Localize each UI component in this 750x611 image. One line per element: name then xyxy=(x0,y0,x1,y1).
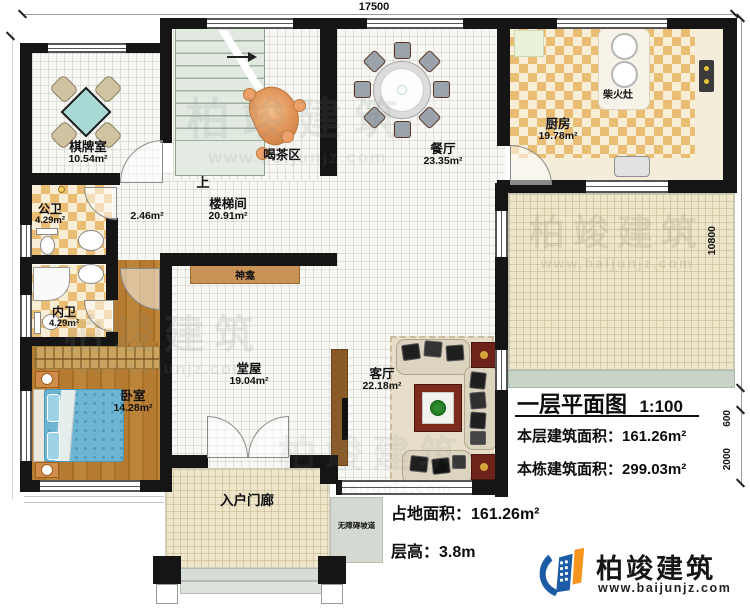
sofa-cushion xyxy=(401,343,421,361)
room-area: 4.29m² xyxy=(38,319,90,330)
gas-burner xyxy=(704,66,709,71)
floor-plan: 无障碍坡道 xyxy=(0,0,750,611)
ceiling-lamp xyxy=(58,186,65,193)
window xyxy=(495,211,508,257)
porch-pillar-base xyxy=(321,584,343,604)
window xyxy=(495,350,508,390)
wood-stove-burner xyxy=(611,61,638,88)
eaves-line-left xyxy=(12,32,13,500)
room-area: 10.54m² xyxy=(48,154,128,166)
wall xyxy=(160,43,172,143)
wall xyxy=(160,253,337,266)
room-name: 内卫 xyxy=(38,306,90,319)
floor-area-value: 161.26m² xyxy=(622,428,686,445)
bed-pillow xyxy=(47,394,60,422)
tv-screen xyxy=(342,398,348,440)
window xyxy=(40,480,140,492)
window xyxy=(20,391,32,461)
porch-step-2 xyxy=(180,581,322,594)
room-area: 19.04m² xyxy=(218,376,280,388)
stair-direction-arrow xyxy=(248,52,257,62)
porch-pillar xyxy=(153,556,181,584)
nightstand-lamp xyxy=(41,464,53,476)
floor-area-line: 本层建筑面积：161.26m² xyxy=(517,425,686,446)
building-logo-icon xyxy=(534,546,592,598)
public-bath-label: 公卫 4.29m² xyxy=(24,203,76,227)
kitchen-label: 厨房 19.78m² xyxy=(524,117,592,143)
gas-burner xyxy=(704,79,709,84)
toilet-bowl xyxy=(40,236,55,255)
dining-chair xyxy=(354,81,371,98)
wall xyxy=(160,253,172,492)
room-name: 堂屋 xyxy=(218,362,280,376)
dining-chair xyxy=(394,121,411,138)
porch-pillar-base xyxy=(156,584,178,604)
room-name: 厨房 xyxy=(524,117,592,131)
wood-stove-label: 柴火灶 xyxy=(591,90,645,101)
wood-stove-burner xyxy=(611,33,638,60)
porch-pillar xyxy=(318,556,346,584)
porch-step-1 xyxy=(180,568,322,581)
tea-stool xyxy=(281,130,294,143)
wall xyxy=(20,255,110,264)
ramp-label: 无障碍坡道 xyxy=(331,522,382,530)
room-area: 23.35m² xyxy=(411,156,475,168)
window xyxy=(20,225,32,257)
bathroom-sink xyxy=(78,230,104,251)
bed-pillow xyxy=(47,432,60,460)
wall xyxy=(723,18,737,193)
wall xyxy=(20,173,120,185)
gas-cooktop xyxy=(699,60,714,92)
room-name: 餐厅 xyxy=(411,142,475,156)
room-area: 4.29m² xyxy=(24,216,76,227)
sofa-cushion xyxy=(423,340,442,358)
brand-url: www.baijunjz.com xyxy=(598,581,731,595)
wall xyxy=(20,337,118,346)
window xyxy=(367,18,463,29)
entry-porch xyxy=(165,468,330,568)
room-area: 14.28m² xyxy=(102,403,164,415)
window xyxy=(207,18,293,29)
chess-room-label: 棋牌室 10.54m² xyxy=(48,140,128,166)
window xyxy=(586,180,668,193)
room-name: 客厅 xyxy=(351,367,413,381)
stair-landing xyxy=(176,141,264,175)
nightstand-lamp xyxy=(41,373,53,385)
storey-height-value: 3.8m xyxy=(439,544,475,561)
site-area-value: 161.26m² xyxy=(471,506,540,523)
title-block: 一层平面图 1:100 本层建筑面积：161.26m² 本栋建筑面积：299.0… xyxy=(388,385,743,565)
tea-stool xyxy=(243,88,256,101)
wall xyxy=(172,455,208,468)
window xyxy=(20,295,32,337)
end-table-ornament xyxy=(480,351,488,359)
building-area-label: 本栋建筑面积： xyxy=(517,461,622,478)
floor-area-label: 本层建筑面积： xyxy=(517,428,622,445)
shrine-label: 神龛 xyxy=(235,271,255,282)
building-area-value: 299.03m² xyxy=(622,461,686,478)
stair-direction-line xyxy=(227,56,249,58)
building-area-line: 本栋建筑面积：299.03m² xyxy=(517,458,686,479)
room-name: 楼梯间 xyxy=(196,197,260,211)
dining-chair xyxy=(433,81,450,98)
dim-line-top xyxy=(22,14,735,15)
dim-top-label: 17500 xyxy=(339,1,409,13)
window xyxy=(557,18,667,29)
toilet-tank xyxy=(36,228,58,235)
patio xyxy=(508,193,735,370)
wall xyxy=(320,18,337,176)
room-area: 19.78m² xyxy=(524,131,592,143)
wardrobe xyxy=(34,346,160,369)
dish-rack xyxy=(514,30,544,57)
storey-height-label: 层高： xyxy=(391,544,439,561)
site-area-line: 占地面积：161.26m² xyxy=(391,500,540,524)
bathroom-sink xyxy=(78,264,104,284)
shrine-shelf: 神龛 xyxy=(190,265,300,284)
kitchen-sink xyxy=(614,156,650,177)
storey-height-line: 层高：3.8m xyxy=(391,538,475,562)
title-underline xyxy=(515,415,699,417)
corridor-area-label: 2.46m² xyxy=(124,211,170,223)
tea-stool xyxy=(293,99,306,112)
dim-tick xyxy=(6,31,15,40)
room-name: 棋牌室 xyxy=(48,140,128,154)
room-area: 20.91m² xyxy=(196,211,260,223)
inner-bath-label: 内卫 4.29m² xyxy=(38,306,90,330)
dim-right-main: 10800 xyxy=(706,226,718,255)
stairs-up-label: 上 xyxy=(193,176,213,191)
porch-label: 入户门廊 xyxy=(203,493,291,508)
bedroom-label: 卧室 14.28m² xyxy=(102,389,164,415)
dining-table-center xyxy=(397,85,407,95)
stair-break-line xyxy=(215,30,267,92)
dining-label: 餐厅 23.35m² xyxy=(411,142,475,168)
tea-area-label: 喝茶区 xyxy=(252,148,312,162)
wall xyxy=(106,265,118,300)
wall xyxy=(497,18,510,146)
room-name: 公卫 xyxy=(24,203,76,216)
dining-chair xyxy=(394,42,411,59)
ramp: 无障碍坡道 xyxy=(330,497,383,563)
stairwell-label: 楼梯间 20.91m² xyxy=(196,197,260,223)
plan-scale: 1:100 xyxy=(639,397,682,416)
room-name: 卧室 xyxy=(102,389,164,403)
site-area-label: 占地面积： xyxy=(391,506,471,523)
bedroom-sill-line-2 xyxy=(24,502,164,503)
bedroom-sill-line-1 xyxy=(24,496,164,497)
window xyxy=(48,43,126,53)
main-hall-label: 堂屋 19.04m² xyxy=(218,362,280,388)
plan-title: 一层平面图 xyxy=(517,392,627,417)
sofa-cushion xyxy=(445,344,464,361)
brand-logo: 柏竣建筑 www.baijunjz.com xyxy=(534,544,744,604)
brand-logo-icon xyxy=(534,546,592,603)
